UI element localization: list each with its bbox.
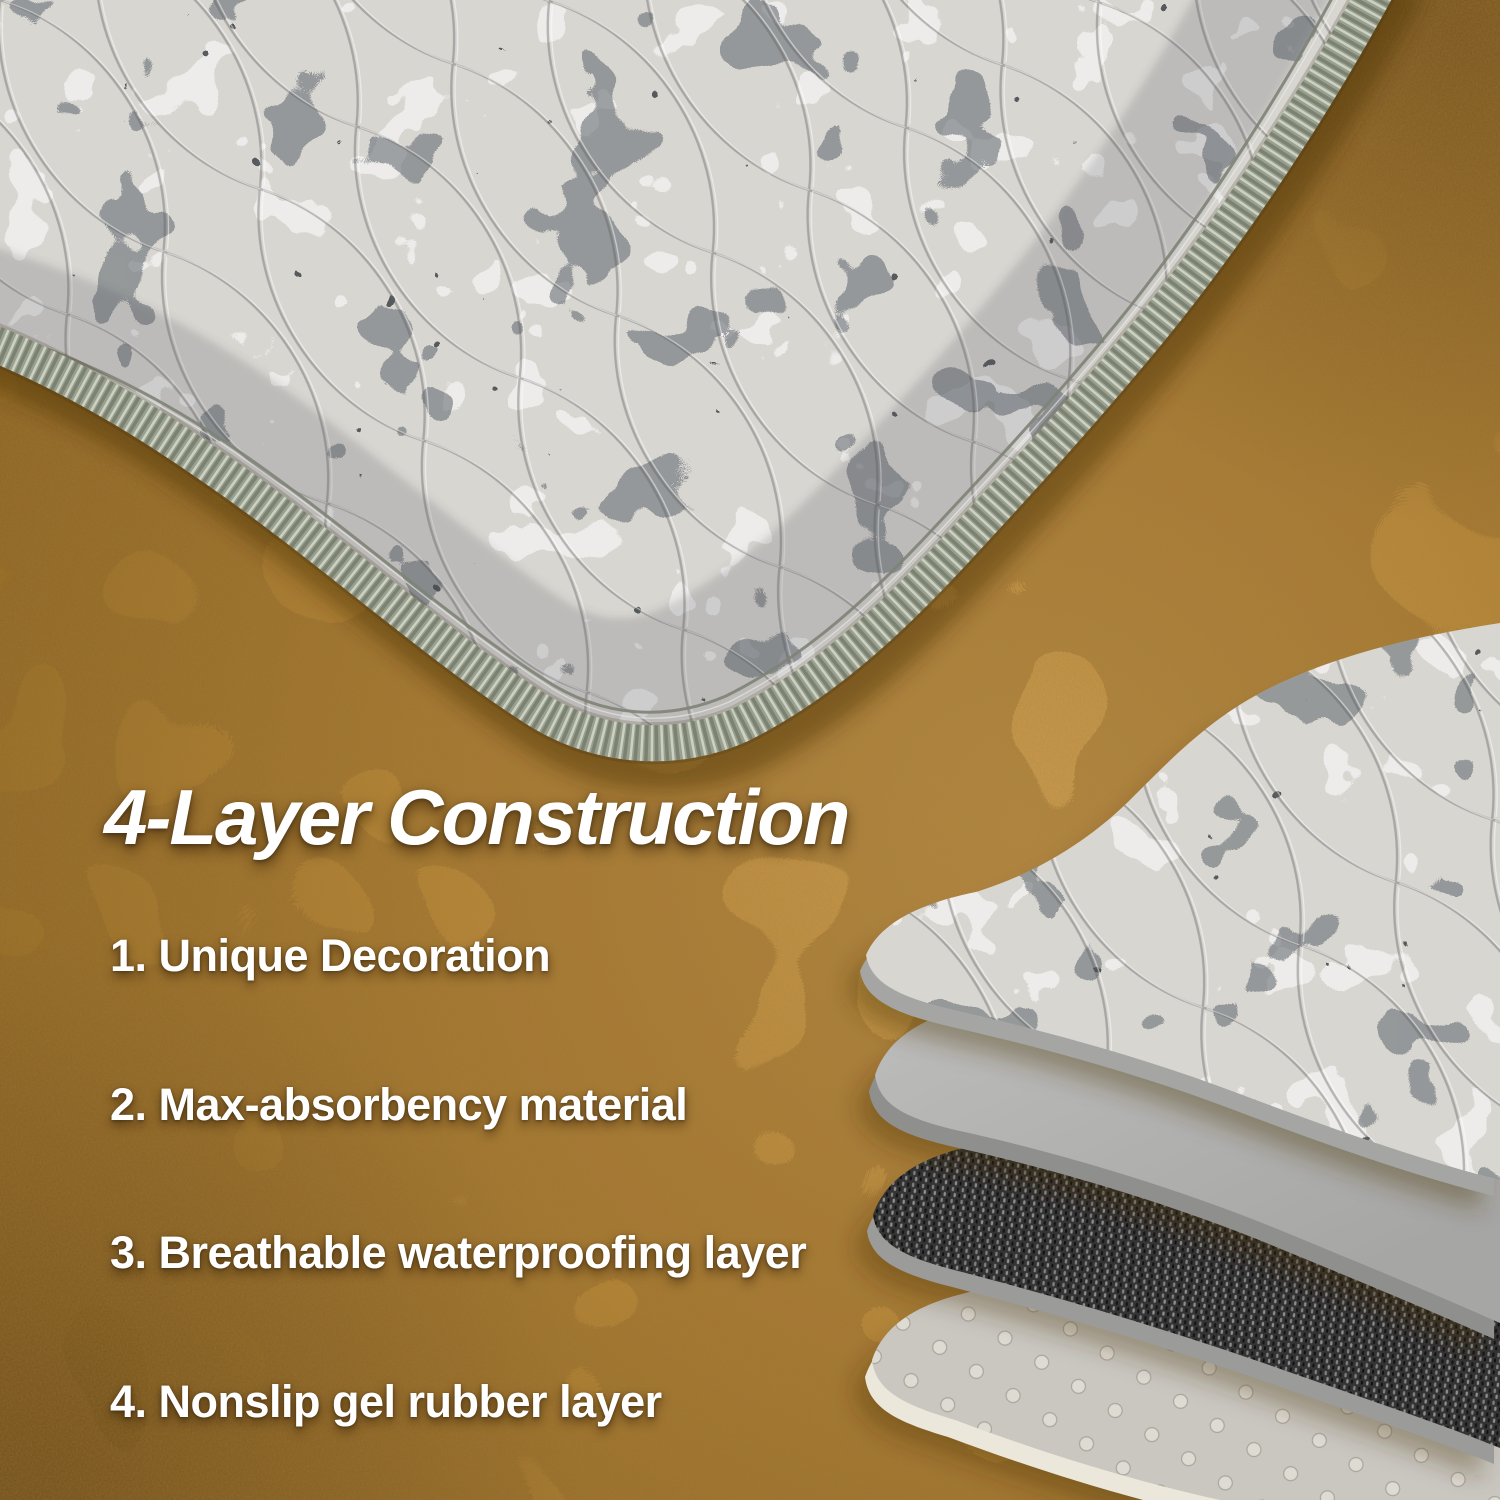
page-title: 4-Layer Construction <box>104 772 848 863</box>
product-infographic: 4-Layer Construction 1. Unique Decoratio… <box>0 0 1500 1500</box>
feature-item-1: 1. Unique Decoration <box>110 930 550 982</box>
feature-item-3: 3. Breathable waterproofing layer <box>110 1227 806 1279</box>
feature-item-2: 2. Max-absorbency material <box>110 1079 687 1131</box>
feature-item-4: 4. Nonslip gel rubber layer <box>110 1376 662 1428</box>
